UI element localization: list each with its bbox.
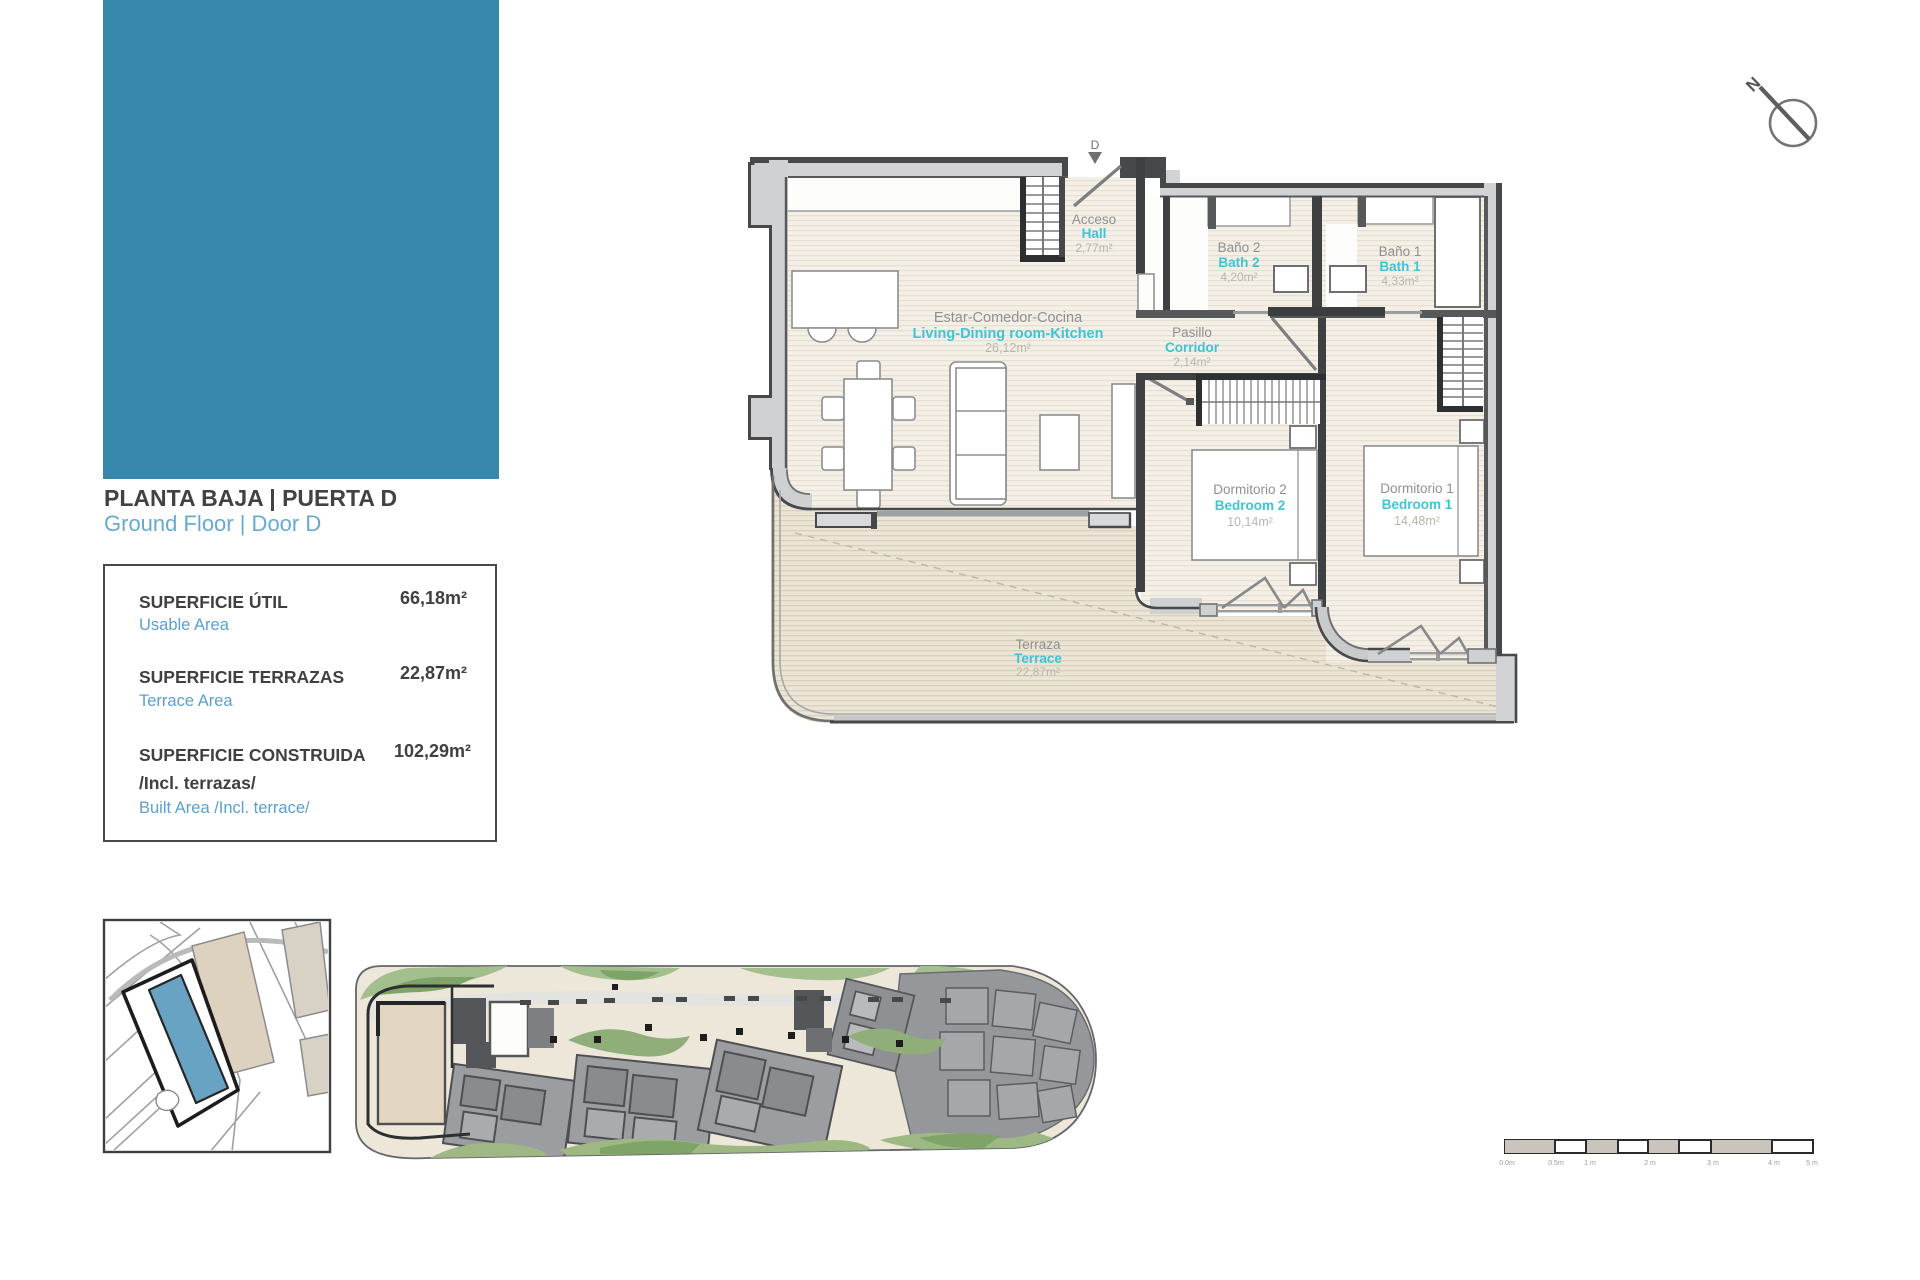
svg-text:2,14m²: 2,14m² [1173,355,1210,369]
svg-text:0.0m: 0.0m [1499,1160,1515,1167]
svg-text:22,87m²: 22,87m² [1016,665,1060,679]
svg-text:Dormitorio 2: Dormitorio 2 [1213,482,1287,497]
svg-text:1 m: 1 m [1584,1160,1596,1167]
svg-text:Bath 1: Bath 1 [1379,259,1421,274]
svg-text:D: D [1091,138,1100,152]
svg-text:2,77m²: 2,77m² [1075,241,1112,255]
svg-text:5 m: 5 m [1806,1160,1818,1167]
svg-text:Baño 2: Baño 2 [1218,240,1261,255]
svg-text:Hall: Hall [1082,226,1107,241]
svg-text:2 m: 2 m [1644,1160,1656,1167]
svg-text:Terrace: Terrace [1014,651,1062,666]
svg-text:Pasillo: Pasillo [1172,325,1212,340]
svg-text:N: N [1742,73,1764,95]
svg-text:Estar-Comedor-Cocina: Estar-Comedor-Cocina [934,310,1083,326]
svg-text:Baño 1: Baño 1 [1379,244,1422,259]
svg-text:4 m: 4 m [1768,1160,1780,1167]
svg-text:4,20m²: 4,20m² [1220,270,1257,284]
svg-text:10,14m²: 10,14m² [1227,515,1273,529]
svg-text:Dormitorio 1: Dormitorio 1 [1380,481,1454,496]
svg-text:Corridor: Corridor [1165,340,1220,355]
svg-text:4,33m²: 4,33m² [1381,274,1418,288]
svg-text:0.5m: 0.5m [1548,1160,1564,1167]
svg-text:26,12m²: 26,12m² [985,341,1031,355]
svg-text:3 m: 3 m [1707,1160,1719,1167]
svg-text:Bedroom 1: Bedroom 1 [1382,497,1453,512]
svg-text:Bath 2: Bath 2 [1218,255,1259,270]
svg-text:Acceso: Acceso [1072,212,1116,227]
svg-text:Bedroom 2: Bedroom 2 [1215,498,1286,513]
svg-text:Terraza: Terraza [1015,637,1061,652]
svg-text:Living-Dining room-Kitchen: Living-Dining room-Kitchen [913,326,1104,342]
svg-text:14,48m²: 14,48m² [1394,514,1440,528]
